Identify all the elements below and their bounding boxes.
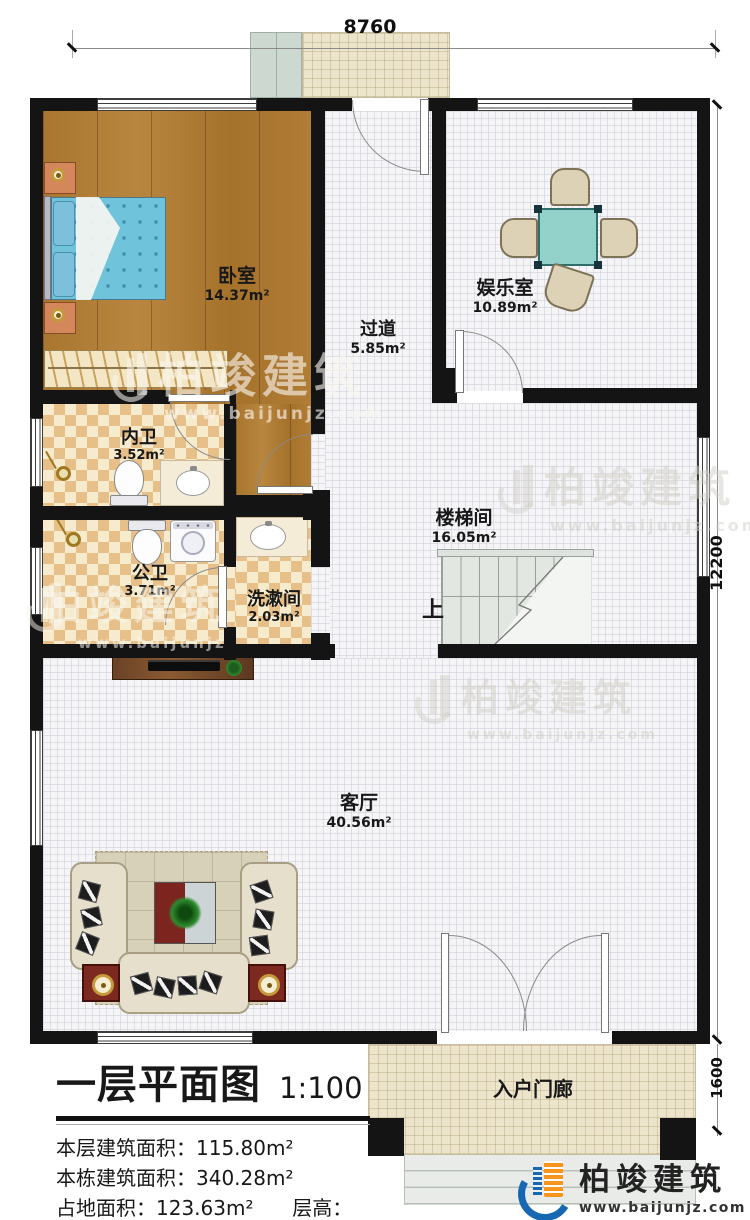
door-bedroom-hall-leaf: [257, 486, 313, 494]
room-label-washroom: 洗漱间 2.03m²: [247, 590, 301, 626]
stat-building-area: 本栋建筑面积：340.28m²: [56, 1163, 386, 1193]
public-bath-toilet-bowl: [132, 529, 162, 565]
room-label-publicbath: 公卫 3.71m²: [124, 564, 175, 600]
wall-nook-bottom: [236, 495, 330, 517]
bed-pillow-top: [53, 201, 75, 246]
stat-footprint-and-height: 占地面积：123.63m² 层高：3.6m: [56, 1193, 386, 1220]
title-underline-thin: [56, 1124, 370, 1125]
room-label-corridor: 过道 5.85m²: [350, 320, 405, 357]
wall-bedroom-bottom-1: [30, 390, 170, 404]
dim-ext-top-right: [715, 30, 716, 58]
tv-screen: [148, 660, 220, 671]
room-label-entry-porch: 入户门廊: [493, 1078, 573, 1101]
game-table: [538, 208, 598, 266]
opening-hall-bedroom: [311, 434, 325, 490]
room-label-innerbath: 内卫 3.52m²: [113, 428, 164, 464]
game-table-leg: [594, 261, 602, 269]
door-innerbath-leaf: [168, 394, 230, 402]
side-table-left-lamp-icon: [92, 974, 114, 996]
sofa-pillow: [249, 935, 270, 956]
sofa-pillow: [80, 906, 103, 929]
game-table-leg: [534, 261, 542, 269]
public-bath-shower-icon: [66, 532, 81, 547]
game-table-leg: [534, 205, 542, 213]
inner-bath-faucet-icon: [190, 466, 197, 471]
wardrobe-rail: [48, 367, 224, 369]
stat-floor-area: 本层建筑面积：115.80m²: [56, 1133, 386, 1163]
stairs-up-label: 上: [422, 592, 444, 624]
back-porch-floor: [302, 32, 450, 98]
title-block: 一层平面图 1:100 本层建筑面积：115.80m² 本栋建筑面积：340.2…: [56, 1052, 386, 1220]
entry-door-left-leaf: [441, 933, 449, 1033]
dim-porch-height: 1600: [708, 1054, 724, 1102]
plan-title: 一层平面图: [56, 1052, 261, 1110]
room-label-entertainment: 娱乐室 10.89m²: [472, 278, 537, 316]
wall-bedroom-bottom-2: [230, 390, 236, 404]
opening-washroom-entry: [311, 567, 330, 633]
wall-bottom-2: [253, 1031, 437, 1044]
back-porch-landing-divider: [276, 32, 277, 98]
nightstand-top-lamp-icon: [51, 168, 65, 182]
wall-corridor-pillar: [432, 368, 457, 403]
wall-bedroom-right: [311, 98, 325, 434]
chair-right: [600, 218, 638, 258]
plan-scale: 1:100: [279, 1071, 363, 1105]
sofa-pillow: [153, 976, 176, 999]
entry-door-right-leaf: [601, 933, 609, 1033]
inner-bath-shower-icon: [56, 466, 71, 481]
brand-logo-icon: [518, 1157, 570, 1213]
floor-plan-canvas: 卧室 14.37m² 过道 5.85m² 娱乐室 10.89m² 内卫 3.52…: [0, 0, 750, 1220]
washroom-sink: [250, 524, 286, 550]
nightstand-bottom-lamp-icon: [51, 308, 65, 322]
window-living-bottom: [97, 1031, 253, 1044]
wall-publicbath-right-top: [224, 520, 236, 567]
door-corridor-entry-leaf: [420, 99, 429, 175]
door-entertainment-leaf: [455, 330, 464, 393]
stairs-rail: [437, 549, 594, 557]
chair-left: [500, 218, 538, 258]
sofa-pillow: [252, 908, 274, 930]
inner-bath-toilet-tank: [110, 495, 148, 506]
chair-top: [550, 168, 590, 206]
inner-bath-toilet-bowl: [114, 460, 144, 498]
inner-bath-sink: [176, 470, 210, 496]
window-bedroom-top: [97, 98, 257, 111]
wall-bottom-1: [30, 1031, 97, 1044]
bed-headboard: [44, 196, 51, 300]
title-underline-thick: [56, 1116, 370, 1121]
wall-bath-living: [30, 644, 335, 658]
wall-bottom-3: [612, 1031, 710, 1044]
game-table-leg: [594, 205, 602, 213]
brand-url: www.baijunjz.com: [579, 1200, 746, 1216]
side-table-right-lamp-icon: [258, 974, 280, 996]
bed-pillow-bottom: [53, 252, 75, 297]
stairs-break-line: [461, 557, 591, 644]
dim-ext-top-left: [72, 30, 73, 58]
wall-stairhall-living: [438, 644, 710, 658]
washing-machine-drum-icon: [181, 531, 205, 555]
door-publicbath-leaf: [218, 566, 227, 628]
sofa-pillow: [177, 975, 197, 995]
dim-main-height: 12200: [707, 535, 725, 591]
washing-machine-panel: [173, 522, 213, 529]
room-label-bedroom: 卧室 14.37m²: [204, 266, 269, 304]
room-label-living: 客厅 40.56m²: [326, 793, 391, 831]
dim-line-top: [72, 48, 716, 49]
brand-logo: 柏竣建筑 www.baijunjz.com: [518, 1154, 746, 1216]
coffee-table-plant-icon: [168, 896, 202, 930]
wardrobe: [44, 350, 228, 388]
wall-top-2: [257, 98, 352, 111]
wall-washroom-right-top: [311, 517, 330, 567]
room-label-stairwell: 楼梯间 16.05m²: [431, 508, 496, 546]
opening-main-entry: [437, 1031, 612, 1044]
washroom-faucet-icon: [265, 521, 272, 526]
dim-top-width: 8760: [330, 16, 410, 38]
wall-innerbath-publicbath: [30, 506, 236, 520]
cabinet-plant-icon: [226, 660, 242, 676]
window-entertainment-top: [477, 98, 633, 111]
window-innerbath-left: [30, 418, 43, 487]
window-living-left: [30, 730, 43, 846]
wall-entertainment-bottom: [523, 388, 710, 403]
brand-name: 柏竣建筑: [579, 1154, 746, 1199]
wall-corridor-right: [432, 98, 446, 368]
window-publicbath-left: [30, 547, 43, 615]
